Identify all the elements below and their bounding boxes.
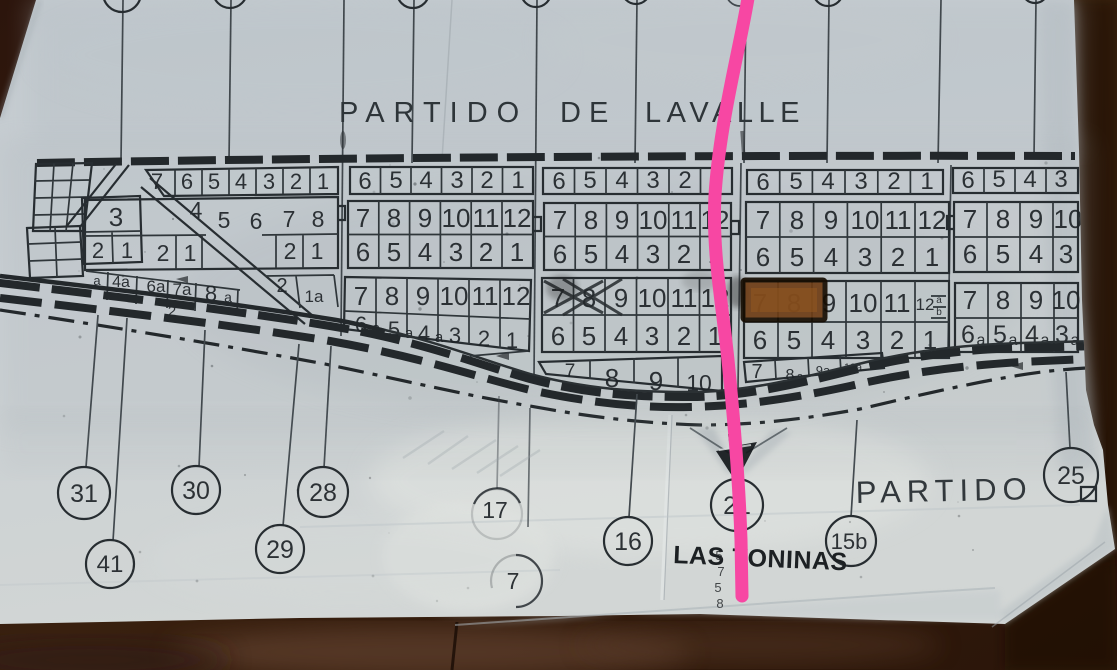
svg-text:17: 17: [482, 497, 508, 523]
svg-text:7: 7: [717, 564, 724, 579]
svg-text:5: 5: [715, 548, 722, 563]
svg-text:5: 5: [714, 580, 721, 595]
svg-text:PARTIDO: PARTIDO: [855, 471, 1033, 510]
svg-text:2: 2: [276, 275, 287, 297]
svg-text:1a: 1a: [305, 287, 324, 306]
svg-text:16: 16: [614, 528, 642, 556]
svg-text:12: 12: [916, 295, 935, 314]
svg-text:31: 31: [70, 480, 98, 508]
svg-text:7: 7: [751, 361, 762, 383]
svg-text:PARTIDO: PARTIDO: [339, 97, 528, 129]
svg-text:25: 25: [1057, 462, 1085, 490]
svg-text:7: 7: [507, 568, 520, 594]
svg-text:8: 8: [716, 596, 723, 611]
svg-text:30: 30: [182, 477, 210, 505]
svg-text:DE: DE: [560, 97, 616, 129]
svg-text:28: 28: [309, 479, 337, 507]
svg-text:41: 41: [97, 551, 124, 578]
svg-text:3: 3: [109, 202, 123, 232]
svg-text:7: 7: [565, 361, 576, 382]
svg-text:29: 29: [266, 536, 294, 564]
